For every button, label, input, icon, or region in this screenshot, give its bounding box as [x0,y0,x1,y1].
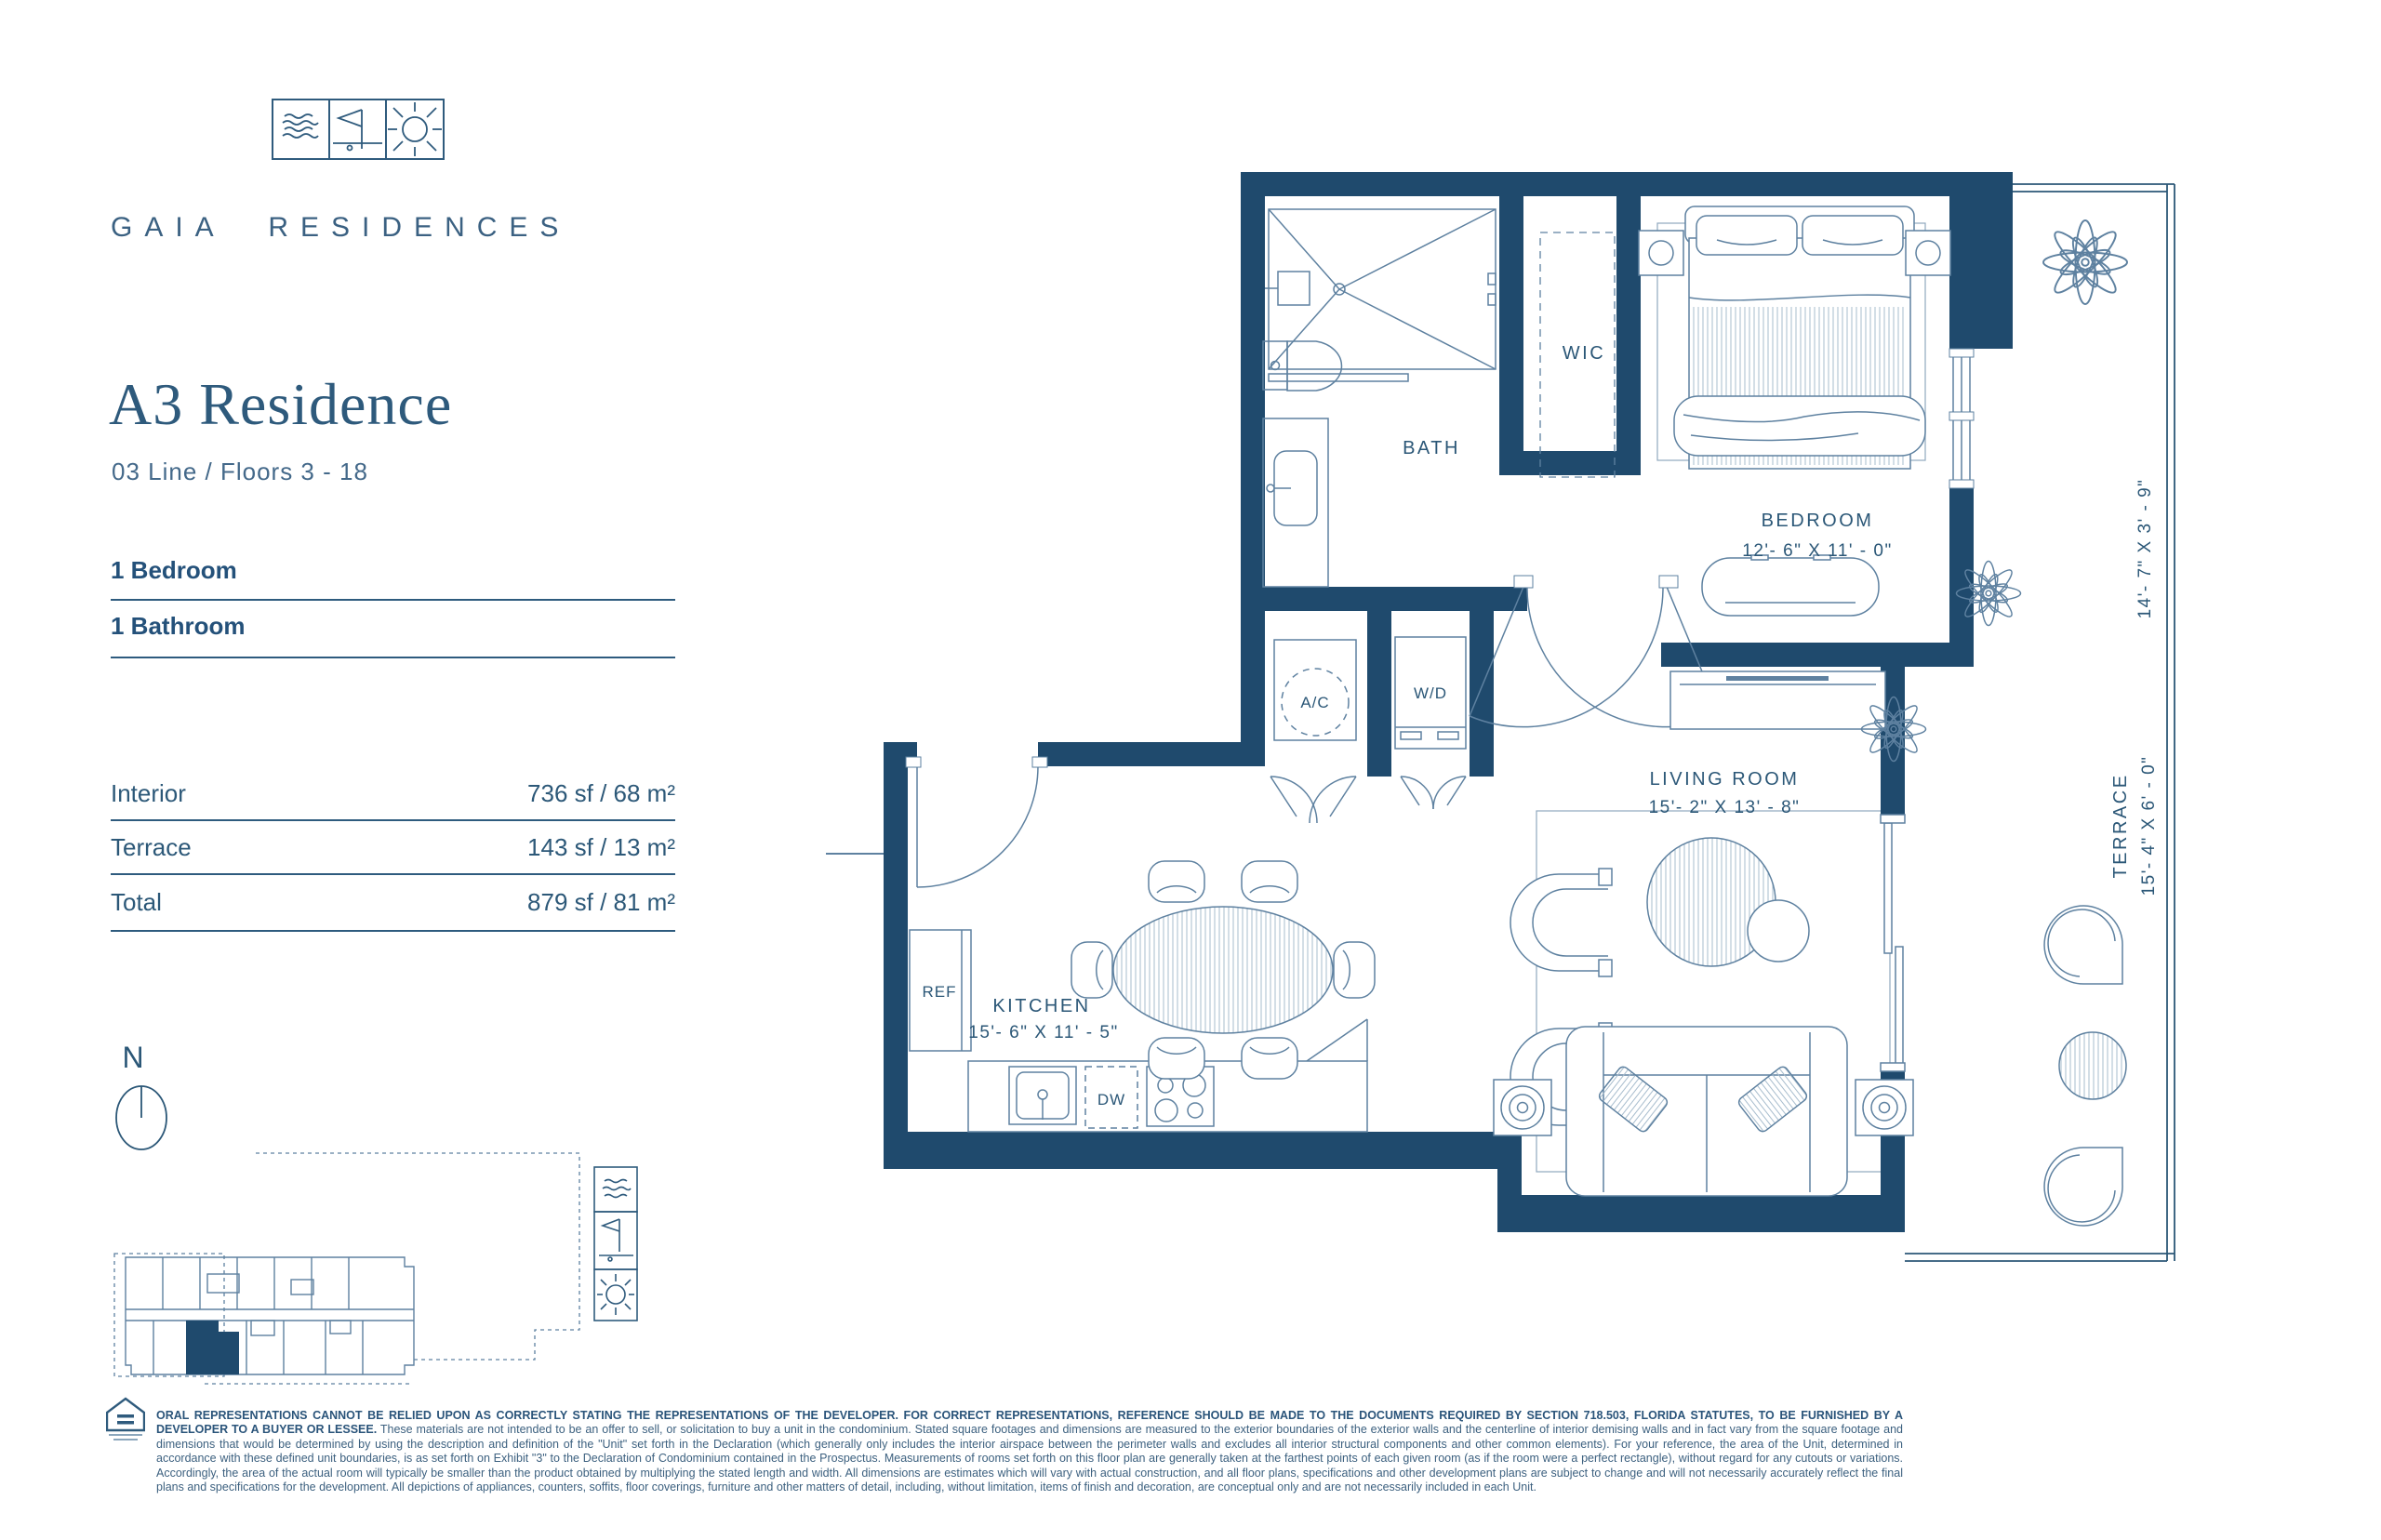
label-ref: REF [923,983,957,1001]
disclaimer-text: ORAL REPRESENTATIONS CANNOT BE RELIED UP… [156,1409,1903,1495]
unit-title: A3 Residence [109,370,452,439]
room-dims-terrace: 15'- 4" X 6' - 0" [2139,756,2159,896]
area-row-terrace: Terrace 143 sf / 13 m² [111,833,675,875]
area-label: Total [111,888,162,930]
kitchen-sink [1009,1067,1076,1124]
room-dims-kitchen: 15'- 6" X 11' - 5" [968,1023,1118,1042]
area-value: 143 sf / 13 m² [527,833,675,873]
vanity [1263,418,1328,587]
terrace-upper-dims: 14'- 7" X 3' - 9" [2135,479,2155,619]
key-plan: N [98,1023,619,1414]
room-label-bedroom: BEDROOM [1762,511,1874,531]
mini-logo [593,1166,638,1322]
room-dims-bedroom: 12'- 6" X 11' - 0" [1742,541,1892,561]
compass-icon [116,1086,166,1149]
terrace-railing [1905,184,2175,1261]
flag-icon [329,100,386,159]
doors [917,587,1721,887]
highlighted-unit [186,1321,239,1374]
compass-north-label: N [122,1041,143,1074]
tv-console [1670,671,1885,729]
feature-bedrooms: 1 Bedroom [111,556,675,601]
equal-housing-icon [106,1397,145,1443]
room-label-bath: BATH [1403,438,1460,458]
area-label: Terrace [111,833,192,873]
brand-name: GAIA RESIDENCES [111,212,570,244]
coffee-table [1647,838,1809,966]
area-row-total: Total 879 sf / 81 m² [111,888,675,932]
building-footprint [126,1257,414,1374]
room-dims-living: 15'- 2" X 13' - 8" [1649,798,1801,817]
disclaimer-body: These materials are not intended to be a… [156,1423,1903,1494]
room-label-kitchen: KITCHEN [992,996,1090,1016]
room-label-living: LIVING ROOM [1650,769,1800,790]
label-dw: DW [1097,1091,1125,1109]
label-wd: W/D [1414,684,1447,702]
floor-plan: BATH WIC BEDROOM 12'- 6" X 11' - 0" LIVI… [818,158,2186,1283]
toilet [1263,341,1341,391]
room-label-wic: WIC [1563,343,1605,364]
bedroom-window [1949,349,1974,488]
area-row-interior: Interior 736 sf / 68 m² [111,779,675,821]
armchair [1510,869,1612,976]
room-label-terrace: TERRACE [2110,773,2131,878]
site-boundary [114,1153,579,1384]
area-value: 736 sf / 68 m² [527,779,675,819]
feature-label: 1 Bedroom [111,556,237,599]
feature-bathrooms: 1 Bathroom [111,612,675,658]
page: GAIA RESIDENCES A3 Residence 03 Line / F… [0,0,2381,1540]
ac-closet [1274,640,1356,740]
feature-label: 1 Bathroom [111,612,245,657]
shower [1265,209,1496,369]
bed [1674,206,1925,469]
bath-fixtures [1263,209,1496,587]
sliding-door [1881,815,1905,1071]
terrace-table [2059,1032,2126,1099]
brand-logo [272,99,445,160]
area-label: Interior [111,779,186,819]
area-value: 879 sf / 81 m² [527,888,675,930]
sofa [1566,1027,1847,1196]
bedroom-bench [1702,555,1879,616]
unit-subtitle: 03 Line / Floors 3 - 18 [112,458,368,486]
label-ac: A/C [1300,694,1329,711]
waves-icon [273,100,329,159]
